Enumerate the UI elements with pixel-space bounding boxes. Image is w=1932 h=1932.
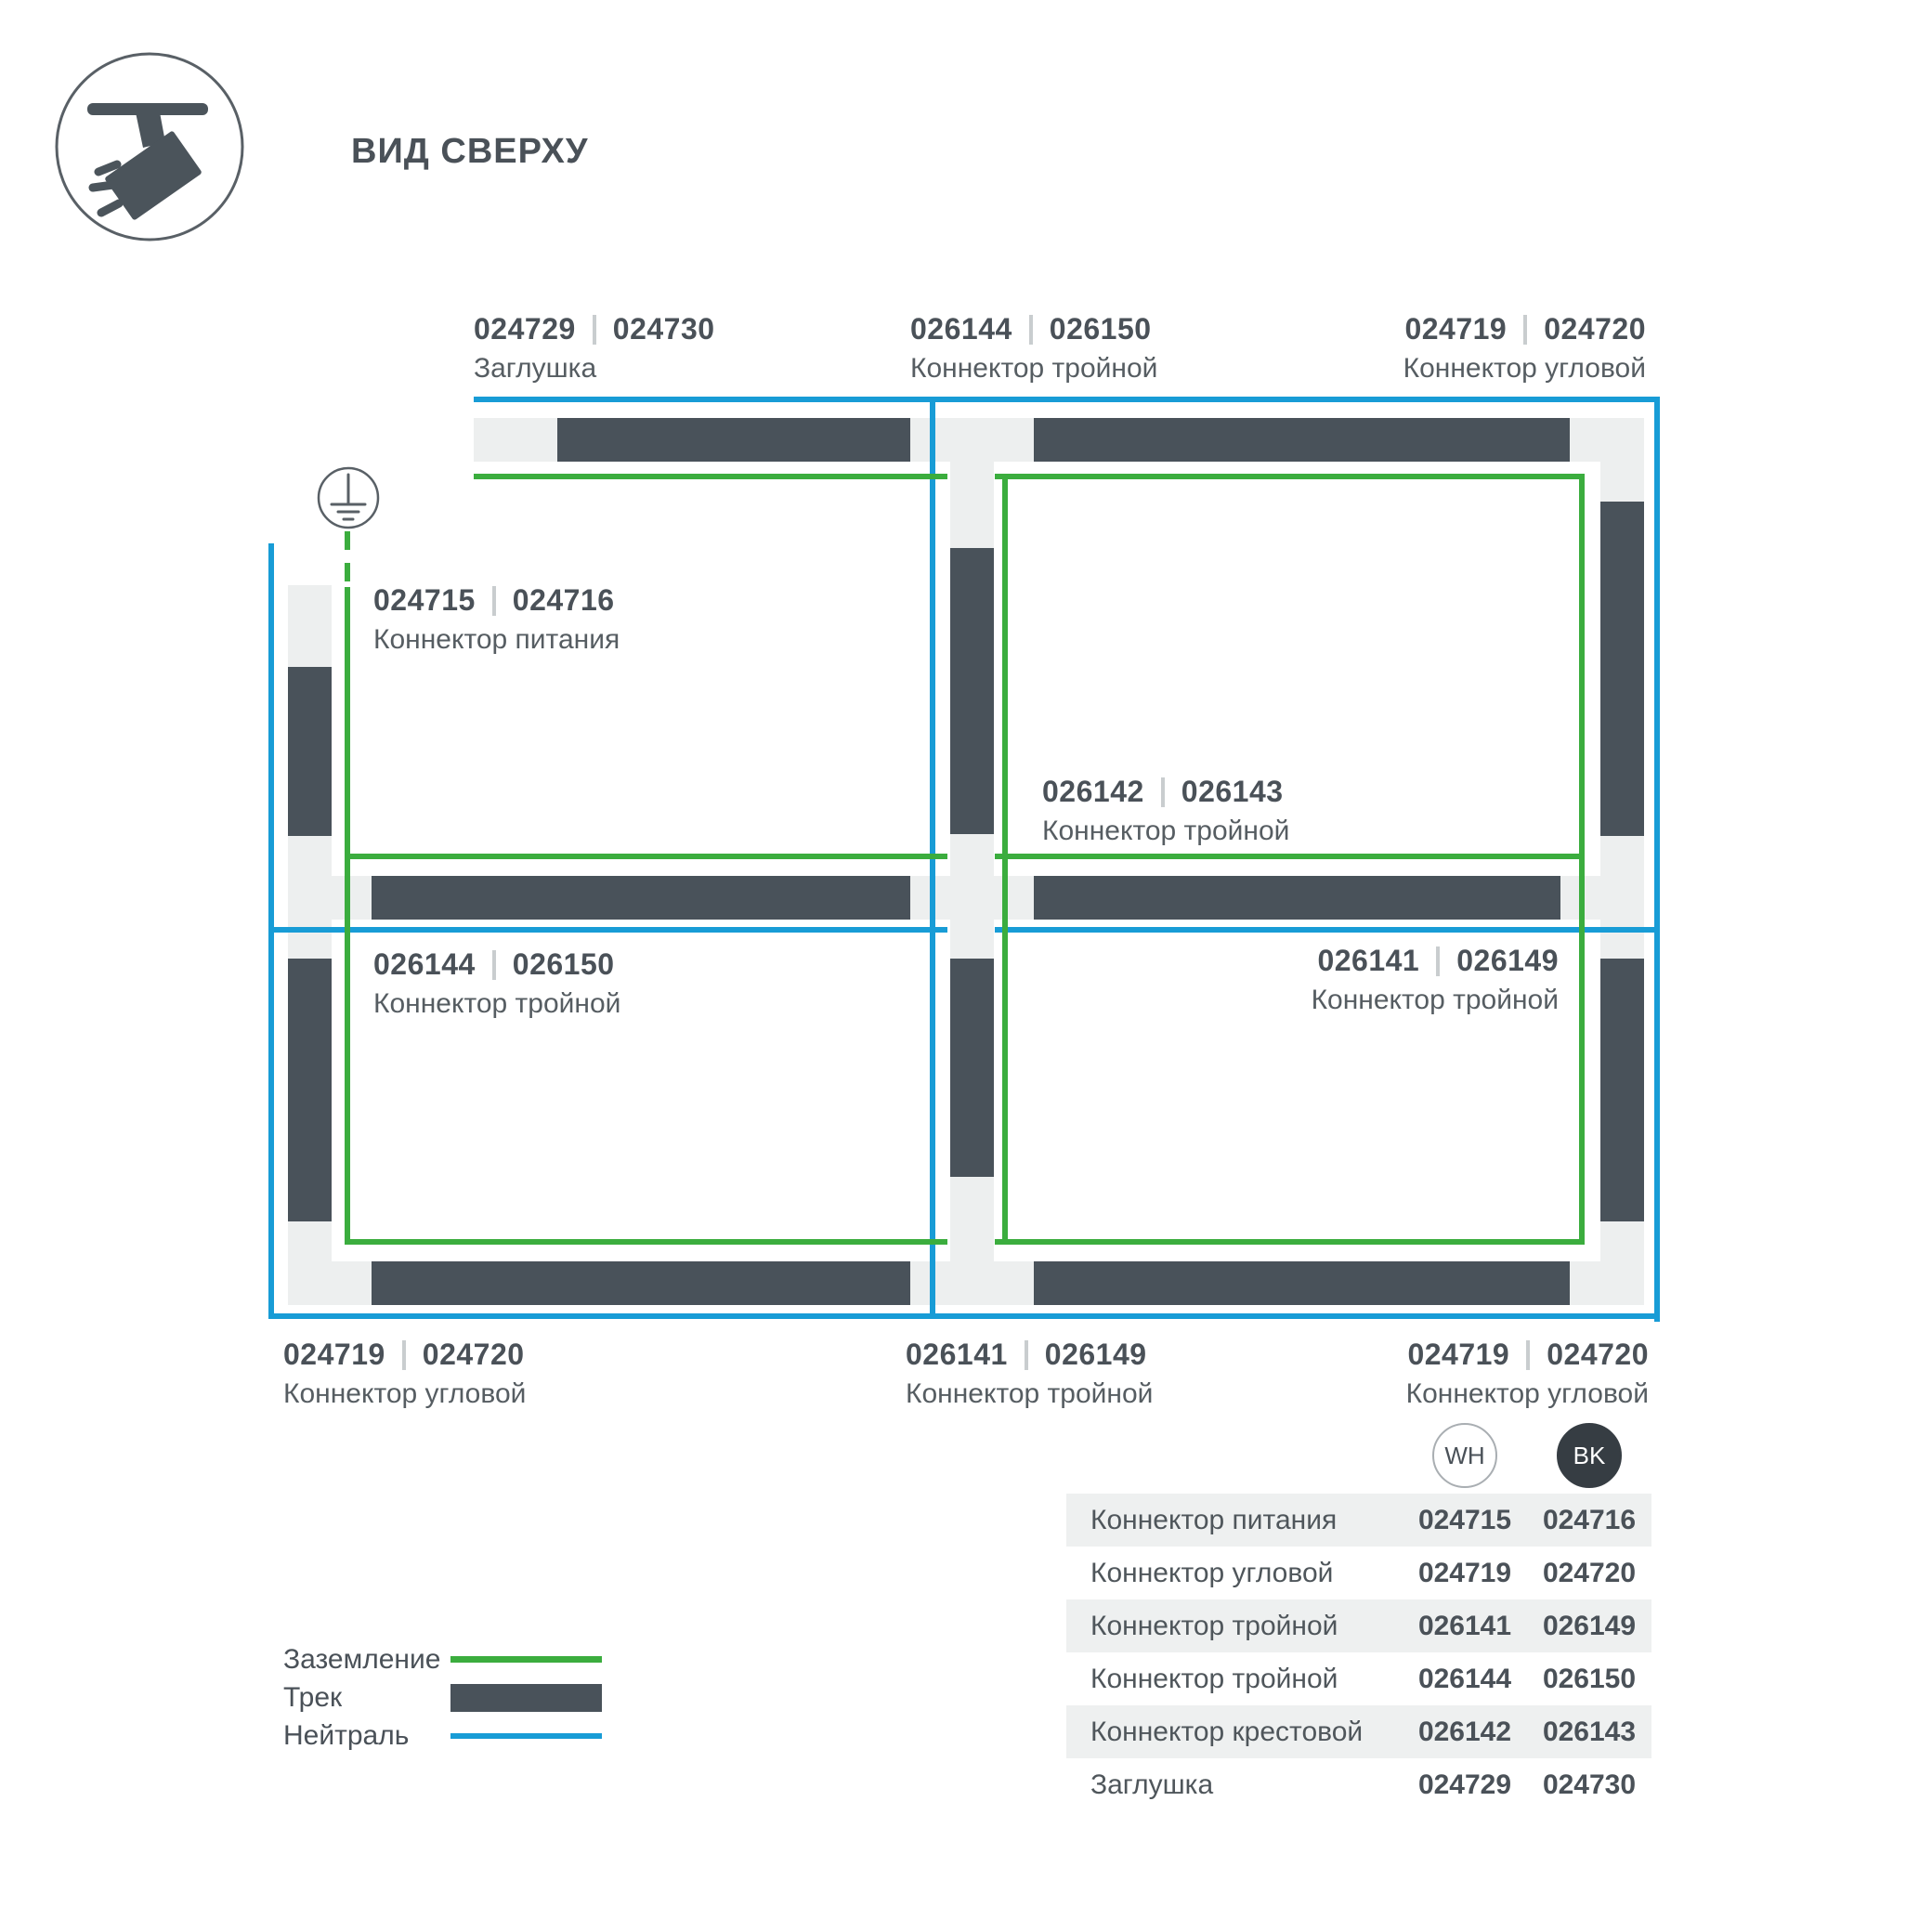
part-number-bk: 026143 [1527, 1717, 1651, 1748]
legend-item-neutral: Нейтраль [283, 1717, 602, 1755]
part-name: Коннектор тройной [910, 353, 1157, 385]
table-row: Коннектор тройной 026144 026150 [1066, 1652, 1651, 1705]
ground-line-swatch [450, 1656, 602, 1663]
part-name: Коннектор угловой [1403, 353, 1646, 385]
part-name: Заглушка [1066, 1769, 1403, 1801]
callout-corner-bottom-left: 024719024720 Коннектор угловой [283, 1338, 526, 1410]
ground-line-bottom-1 [345, 1239, 947, 1245]
part-number-wh: 024715 [373, 583, 476, 618]
part-number-bk: 026149 [1456, 944, 1559, 978]
track-segment [1600, 502, 1644, 836]
divider [492, 586, 496, 616]
ground-feed-dashed-line [345, 531, 350, 589]
part-name: Коннектор питания [1066, 1505, 1403, 1536]
callout-end-cap: 024729024730 Заглушка [474, 312, 715, 385]
track-segment [372, 1261, 910, 1305]
part-number-bk: 024720 [1544, 312, 1646, 346]
part-name: Коннектор тройной [1042, 816, 1289, 847]
part-number-wh: 024729 [474, 312, 576, 346]
track-segment [372, 876, 910, 920]
parts-table: WH BK Коннектор питания 024715 024716 Ко… [1066, 1423, 1651, 1811]
part-name: Коннектор тройной [373, 988, 620, 1020]
part-number-wh: 026144 [1403, 1664, 1527, 1695]
part-name: Коннектор крестовой [1066, 1717, 1403, 1748]
part-number-bk: 024730 [1527, 1769, 1651, 1801]
callout-t-connector-bottom: 026141026149 Коннектор тройной [906, 1338, 1153, 1410]
track-segment [1034, 1261, 1570, 1305]
part-number-bk: 024716 [1527, 1505, 1651, 1536]
neutral-line-mid-h1 [268, 927, 947, 933]
track-segment [1034, 418, 1570, 462]
track-swatch [450, 1684, 602, 1712]
part-name: Коннектор угловой [283, 1378, 526, 1410]
callout-cross-connector: 026142026143 Коннектор тройной [1042, 775, 1289, 847]
parts-table-header: WH BK [1066, 1423, 1651, 1494]
part-number-wh: 026144 [373, 947, 476, 982]
ground-line-right-v [1579, 474, 1585, 1245]
bk-color-badge: BK [1557, 1423, 1622, 1488]
part-name: Коннектор угловой [1406, 1378, 1649, 1410]
legend-label: Трек [283, 1682, 450, 1714]
part-number-bk: 026143 [1181, 775, 1284, 809]
part-number-wh: 026142 [1042, 775, 1144, 809]
neutral-line-swatch [450, 1733, 602, 1739]
ground-symbol [316, 465, 381, 535]
ground-line-mid-2 [995, 854, 1585, 859]
track-segment [1034, 876, 1560, 920]
part-number-bk: 026149 [1045, 1338, 1147, 1372]
callout-power-connector: 024715024716 Коннектор питания [373, 583, 620, 656]
part-number-wh: 026144 [910, 312, 1012, 346]
track-segment [950, 959, 994, 1177]
table-row: Коннектор питания 024715 024716 [1066, 1494, 1651, 1547]
legend-item-track: Трек [283, 1678, 602, 1717]
table-row: Коннектор тройной 026141 026149 [1066, 1599, 1651, 1652]
part-name: Коннектор тройной [906, 1378, 1153, 1410]
part-number-wh: 024719 [1407, 1338, 1509, 1372]
neutral-line-right [1654, 397, 1660, 1322]
part-number-bk: 024730 [613, 312, 715, 346]
ground-line-mid-v [1002, 474, 1008, 1245]
part-number-wh: 024719 [1403, 1558, 1527, 1589]
part-number-bk: 024720 [1547, 1338, 1649, 1372]
part-name: Заглушка [474, 353, 715, 385]
top-view-diagram-page: ВИД СВЕРХУ [0, 0, 1932, 1932]
part-number-wh: 024729 [1403, 1769, 1527, 1801]
page-title: ВИД СВЕРХУ [351, 132, 589, 172]
part-number-bk: 024716 [513, 583, 615, 618]
track-segment [288, 667, 332, 836]
callout-corner-top-right: 024719024720 Коннектор угловой [1403, 312, 1646, 385]
part-number-wh: 024719 [1404, 312, 1507, 346]
divider [1161, 777, 1165, 807]
divider [1523, 315, 1527, 345]
part-name: Коннектор угловой [1066, 1558, 1403, 1589]
legend-label: Заземление [283, 1644, 450, 1676]
part-number-bk: 024720 [423, 1338, 525, 1372]
part-number-bk: 024720 [1527, 1558, 1651, 1589]
divider [1025, 1340, 1028, 1370]
divider [492, 950, 496, 980]
part-name: Коннектор питания [373, 624, 620, 656]
part-number-wh: 026141 [1317, 944, 1419, 978]
legend-label: Нейтраль [283, 1720, 450, 1752]
ground-line-left-v [345, 587, 350, 1245]
divider [402, 1340, 406, 1370]
track-segment [557, 418, 910, 462]
neutral-line-mid-h2 [995, 927, 1660, 933]
callout-t-connector-left: 026144026150 Коннектор тройной [373, 947, 620, 1020]
part-number-bk: 026149 [1527, 1611, 1651, 1642]
table-row: Коннектор крестовой 026142 026143 [1066, 1705, 1651, 1758]
part-number-bk: 026150 [1527, 1664, 1651, 1695]
neutral-line-top [474, 397, 1660, 402]
track-segment [1600, 959, 1644, 1221]
wh-color-badge: WH [1432, 1423, 1497, 1488]
divider [1436, 946, 1440, 976]
part-name: Коннектор тройной [1312, 985, 1559, 1016]
part-number-wh: 026141 [1403, 1611, 1527, 1642]
divider [593, 315, 596, 345]
ground-line-top-1 [474, 474, 947, 479]
callout-t-connector-top: 026144026150 Коннектор тройной [910, 312, 1157, 385]
neutral-line-bottom [268, 1313, 1660, 1319]
part-name: Коннектор тройной [1066, 1664, 1403, 1695]
part-number-wh: 026142 [1403, 1717, 1527, 1748]
part-name: Коннектор тройной [1066, 1611, 1403, 1642]
divider [1526, 1340, 1530, 1370]
part-number-bk: 026150 [513, 947, 615, 982]
callout-corner-bottom-right: 024719024720 Коннектор угловой [1406, 1338, 1649, 1410]
part-number-bk: 026150 [1050, 312, 1152, 346]
part-number-wh: 024719 [283, 1338, 385, 1372]
divider [1029, 315, 1033, 345]
part-number-wh: 024715 [1403, 1505, 1527, 1536]
track-segment [288, 959, 332, 1221]
callout-t-connector-right: 026141026149 Коннектор тройной [1312, 944, 1559, 1016]
part-number-wh: 026141 [906, 1338, 1008, 1372]
legend: Заземление Трек Нейтраль [283, 1640, 602, 1755]
track-segment [950, 548, 994, 834]
table-row: Коннектор угловой 024719 024720 [1066, 1547, 1651, 1599]
ground-line-top-2 [995, 474, 1585, 479]
ground-line-bottom-2 [995, 1239, 1585, 1245]
legend-item-ground: Заземление [283, 1640, 602, 1678]
ground-line-mid-1 [345, 854, 947, 859]
track-light-icon [54, 51, 245, 242]
table-row: Заглушка 024729 024730 [1066, 1758, 1651, 1811]
